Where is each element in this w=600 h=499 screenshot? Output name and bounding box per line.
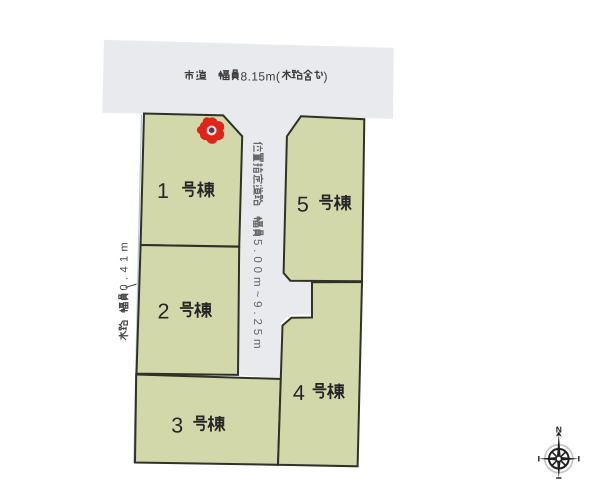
svg-text:1: 1 [157, 179, 169, 203]
svg-text:2: 2 [158, 300, 170, 324]
svg-text:5: 5 [297, 192, 309, 216]
svg-text:8.15m(: 8.15m( [241, 69, 281, 83]
svg-text:0.41m: 0.41m [119, 238, 131, 291]
svg-text:): ) [324, 69, 328, 83]
svg-text:3: 3 [171, 413, 183, 437]
svg-text:5.00m~9.25m: 5.00m~9.25m [251, 239, 263, 353]
svg-text:4: 4 [293, 381, 305, 405]
svg-text:N: N [556, 425, 562, 435]
